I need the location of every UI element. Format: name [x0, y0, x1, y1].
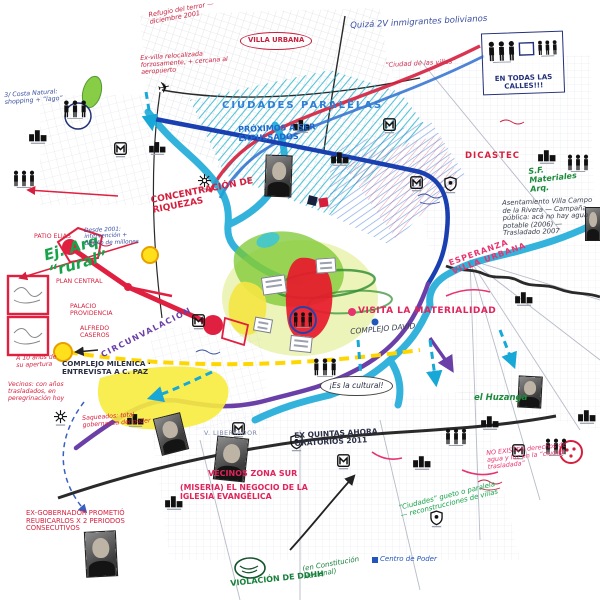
note-proximos-expulsados: PRÓXIMOS A SER EXPULSADOS: [238, 123, 331, 144]
note-card: [253, 317, 273, 334]
note-diez-anos: A 10 años de su apertura: [16, 354, 62, 369]
note-card: [289, 335, 313, 353]
note-palacio-providencia: PALACIO PROVIDENCIA: [70, 304, 128, 318]
note-card: [261, 274, 287, 295]
black-arrow-to-node: [76, 350, 98, 352]
portrait-photo: [85, 531, 117, 577]
note-vecinos-zona-sur: VECINOS ZONA SUR: [208, 470, 297, 479]
note-desde-2001: Desde 2001: intervención + diseño de mil…: [84, 226, 143, 247]
note-el-huzanga: el Huzanga: [474, 394, 527, 404]
note-complejo-milenica: COMPLEJO MILENICA · ENTREVISTA A C. PAZ: [62, 360, 180, 376]
power-center-icon: [372, 557, 378, 563]
pink-dot: [348, 308, 356, 316]
building-stamp-icon: [149, 142, 165, 155]
note-asentamiento-rivera: Asentamiento Villa Campo de la Rivera — …: [502, 197, 598, 238]
note-centro-de-poder: Centro de Poder: [380, 556, 437, 564]
note-patio-elias: PATIO ELIAS: [34, 234, 71, 241]
red-square-marker: [318, 197, 328, 207]
note-ex-gobernador: EX-GOBERNADOR PROMETIÓ REUBICARLOS X 2 P…: [26, 510, 138, 533]
people-stamp-icon: [314, 359, 336, 378]
note-dicastec: DICASTEC: [465, 152, 520, 162]
annotated-city-map: ✈ EN TODAS LAS CALLES!!! CIUDADES PARALE…: [0, 0, 600, 600]
label-ciudades-paralelas: CIUDADES PARALELAS: [222, 100, 383, 111]
people-row-icon: [486, 37, 559, 63]
label-v-libertador: V. LIBERTADOR: [204, 430, 257, 437]
note-villa-urbana: VILLA URBANA: [240, 32, 312, 50]
street-sign-box: EN TODAS LAS CALLES!!!: [481, 31, 565, 96]
people-stamp-icon: [14, 171, 34, 188]
note-miseria-iglesia: (MISERIA) EL NEGOCIO DE LA IGLESIA EVANG…: [180, 484, 308, 501]
note-plan-central: PLAN CENTRAL: [56, 279, 103, 286]
note-visita-materialidad: VISITA LA MATERIALIDAD: [358, 306, 496, 316]
note-vecinos-trasladados: Vecinos: con años trasladados, en peregr…: [8, 382, 100, 403]
note-card: [316, 257, 337, 273]
sign-box-label: EN TODAS LAS CALLES!!!: [483, 73, 564, 92]
yellow-node-1: [142, 247, 158, 263]
gear-stamp-icon: [54, 410, 67, 426]
